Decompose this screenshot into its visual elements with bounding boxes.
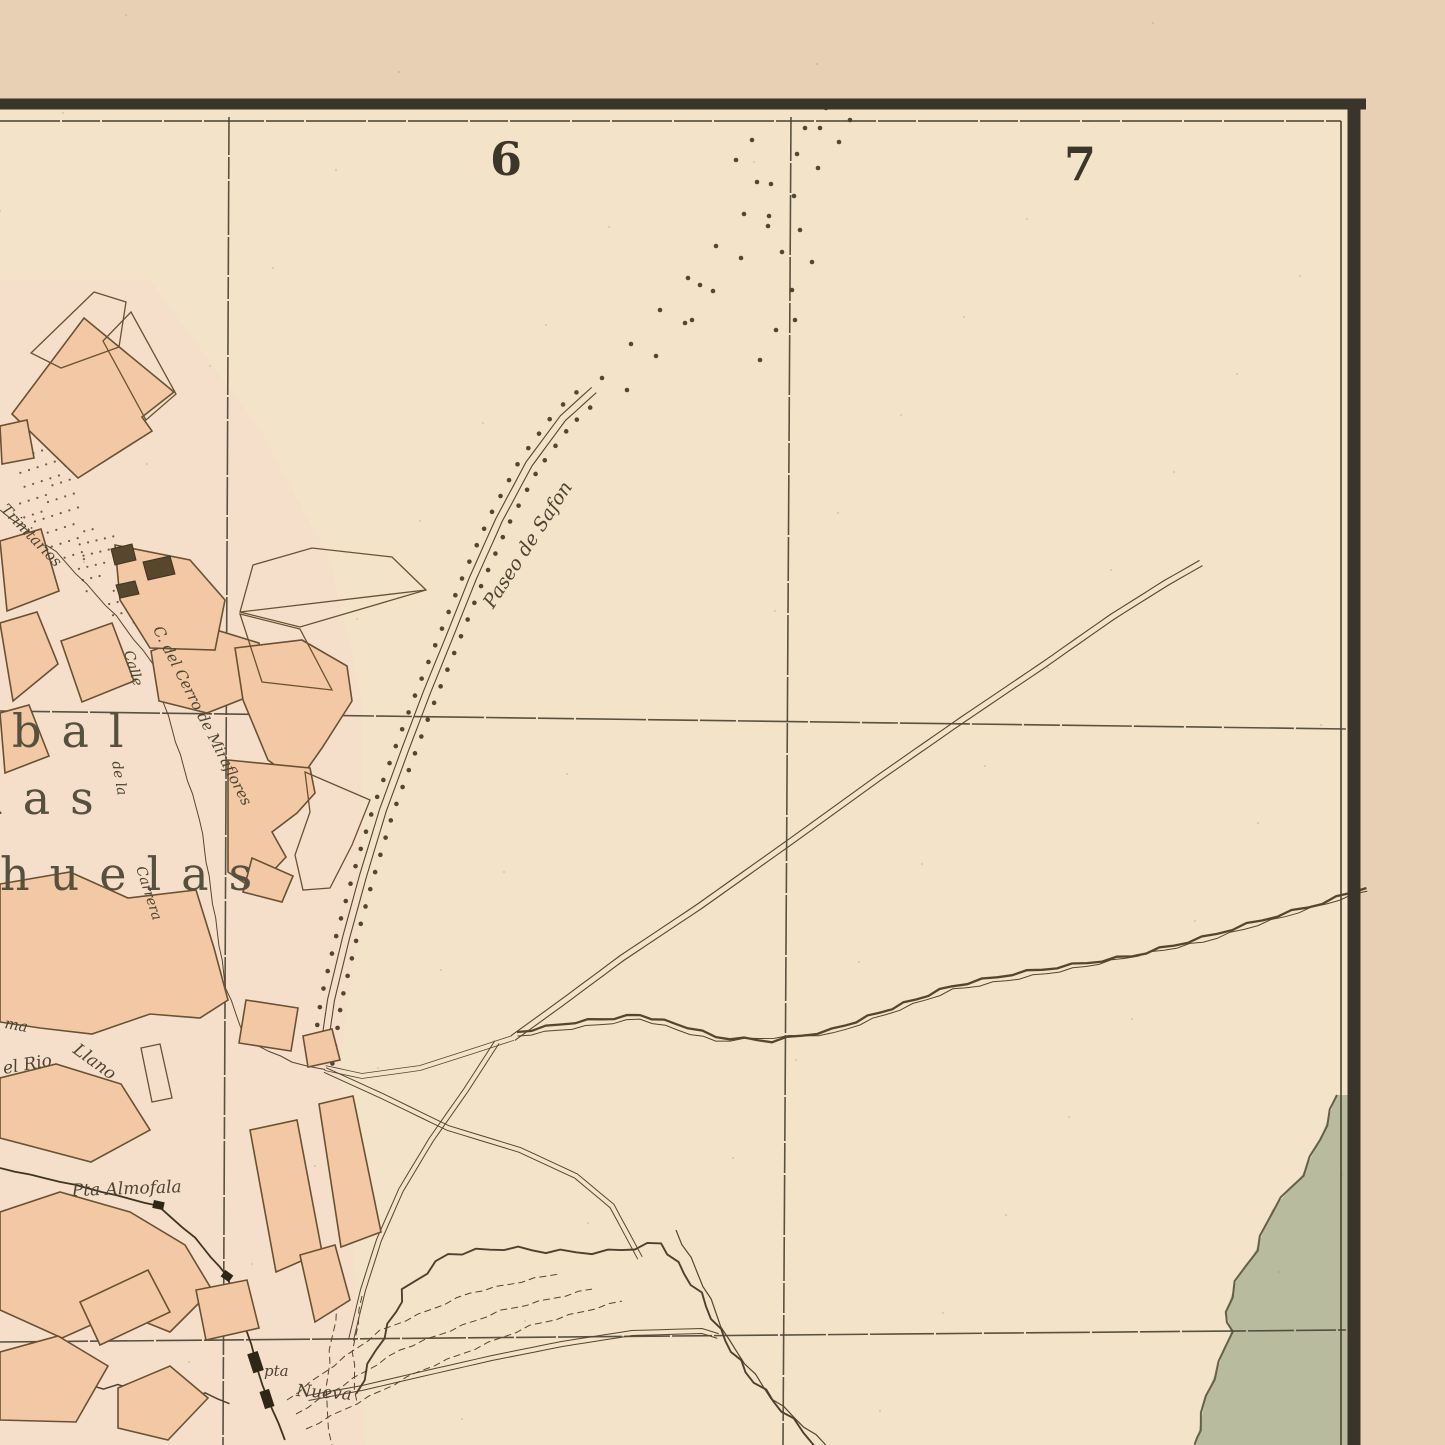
grid-sector-6: 6	[490, 132, 522, 186]
district-label-line2: las	[0, 771, 114, 825]
district-label-frag0: a	[0, 657, 13, 711]
gate-label-pta-almofala: Pta Almofala	[70, 1177, 182, 1201]
grid-sector-7: 7	[1064, 137, 1096, 191]
map-canvas: 6 7 a bal las huelas Paseo de Safon Trin…	[0, 0, 1445, 1445]
gate-label-pta-nueva-1: pta	[264, 1362, 289, 1380]
gate-label-pta-nueva-2: Nueva	[295, 1381, 353, 1405]
district-label-line1: bal	[12, 704, 144, 758]
map-sheet: 6 7 a bal las huelas Paseo de Safon Trin…	[0, 0, 1445, 1445]
